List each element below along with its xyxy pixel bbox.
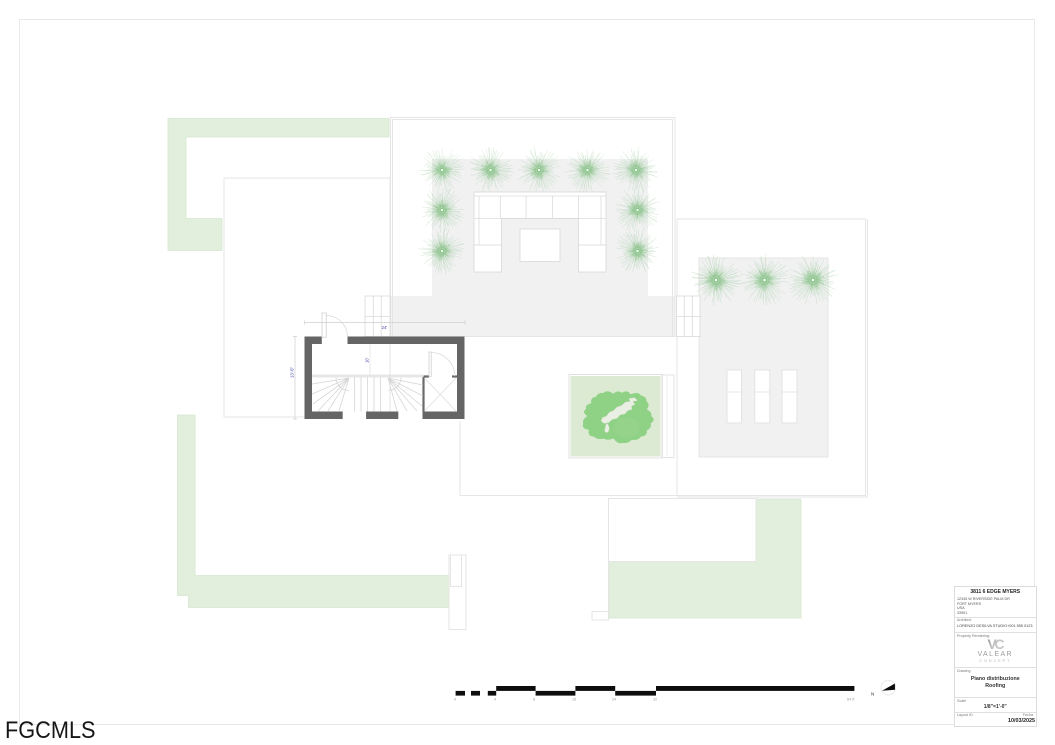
svg-text:64 ft: 64 ft (847, 698, 855, 702)
svg-text:24: 24 (612, 698, 616, 702)
svg-text:4: 4 (494, 698, 496, 702)
svg-text:16: 16 (572, 698, 576, 702)
svg-text:10': 10' (364, 357, 369, 363)
svg-text:C: C (994, 637, 1004, 651)
svg-text:13'-6": 13'-6" (290, 366, 295, 378)
svg-text:8: 8 (533, 698, 535, 702)
svg-text:N: N (871, 692, 874, 697)
svg-text:32: 32 (653, 698, 657, 702)
svg-text:0: 0 (454, 698, 456, 702)
svg-text:24': 24' (382, 325, 388, 330)
